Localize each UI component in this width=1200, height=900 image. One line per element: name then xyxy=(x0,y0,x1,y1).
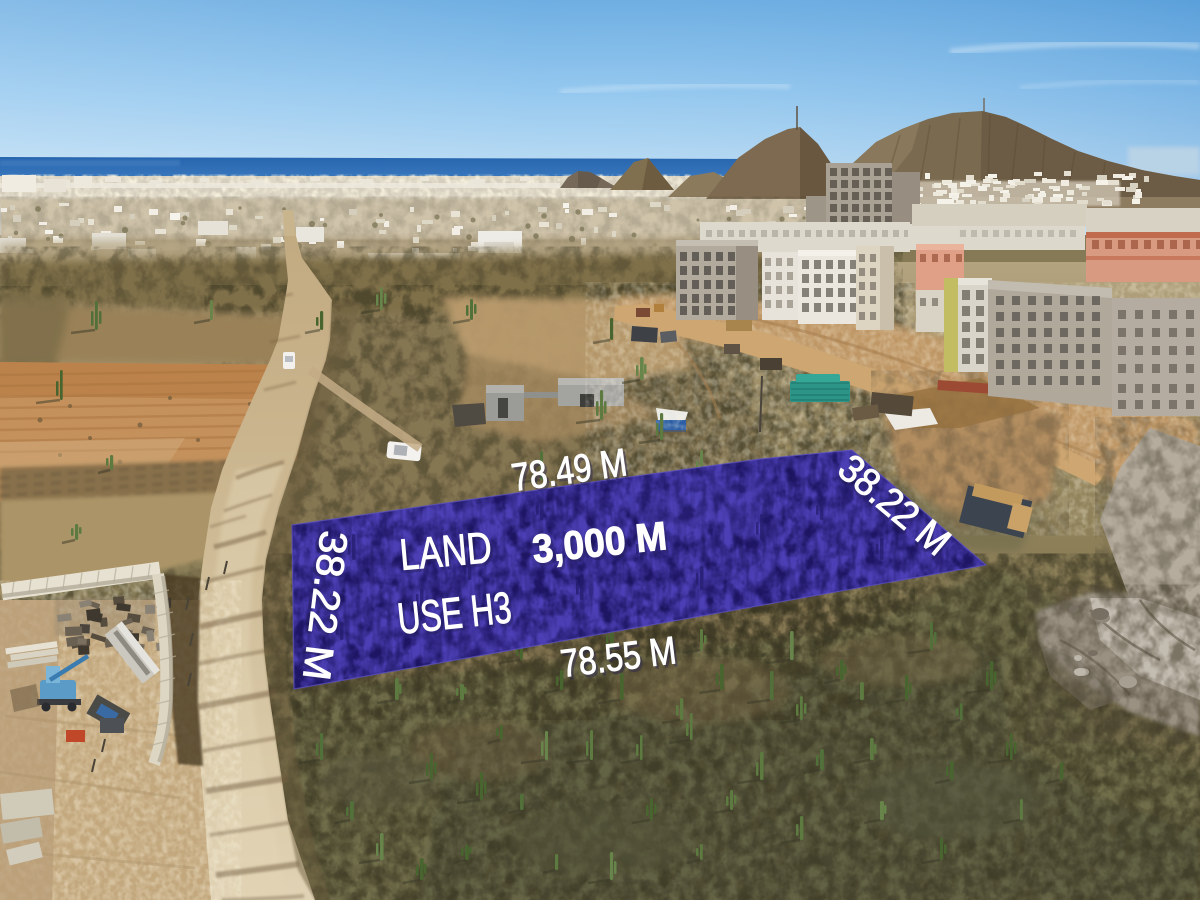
svg-text:LAND: LAND xyxy=(398,523,494,580)
